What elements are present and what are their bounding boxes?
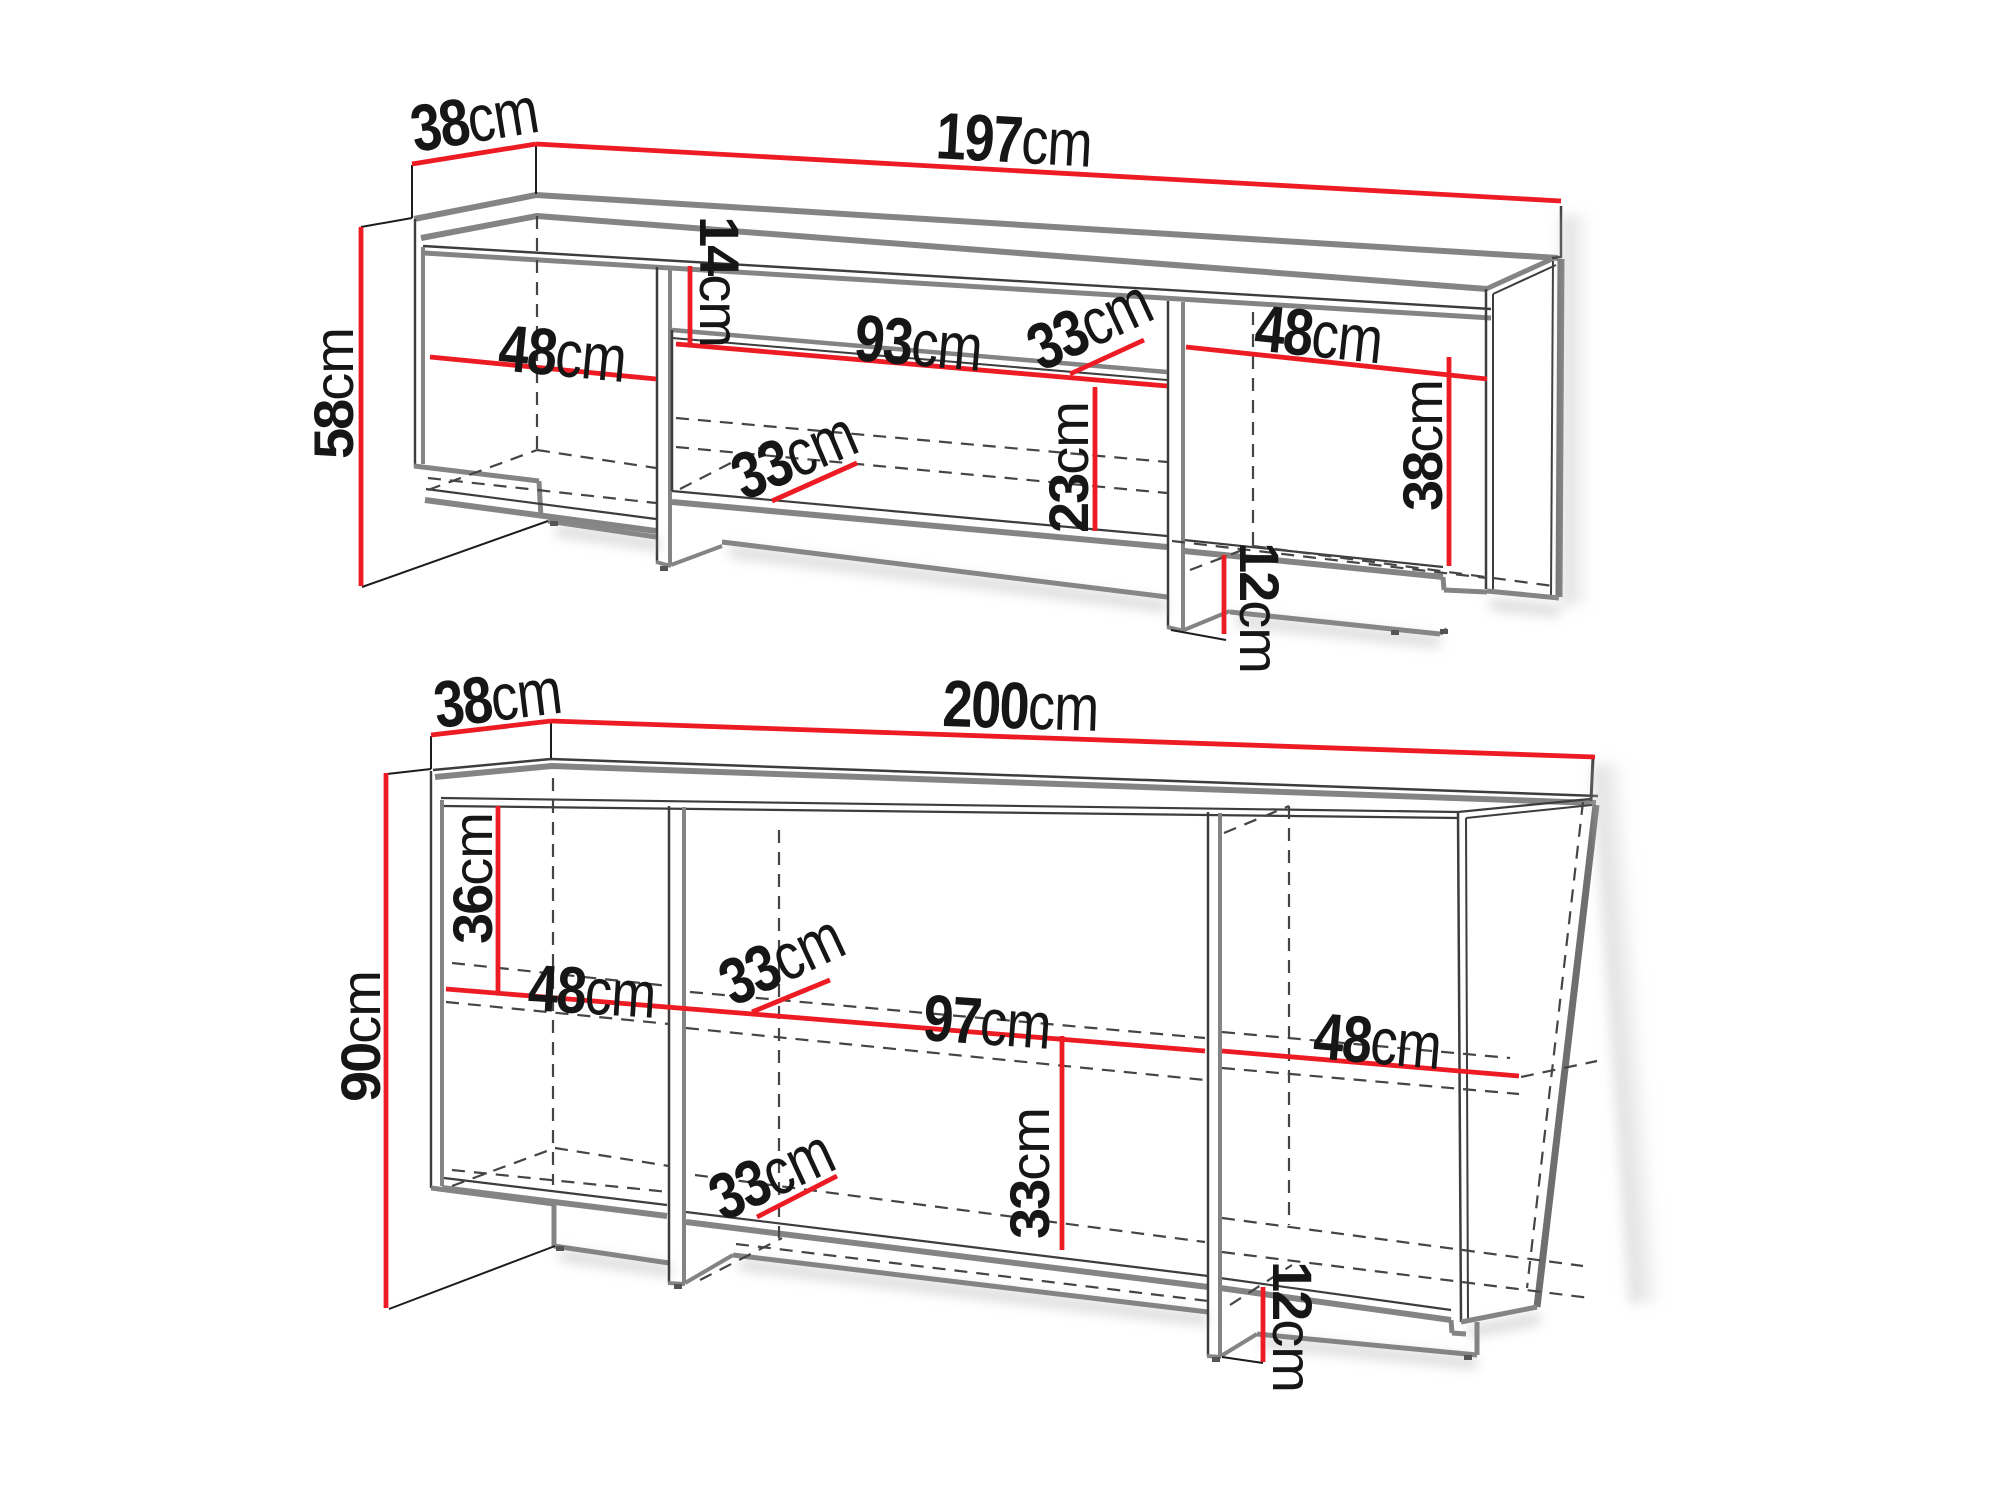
svg-text:200cm: 200cm <box>942 666 1100 745</box>
svg-text:12cm: 12cm <box>1261 1261 1324 1392</box>
svg-text:48cm: 48cm <box>496 310 630 396</box>
svg-text:58cm: 58cm <box>302 328 365 459</box>
svg-text:23cm: 23cm <box>1037 402 1100 533</box>
svg-text:12cm: 12cm <box>1228 542 1291 673</box>
svg-text:38cm: 38cm <box>1391 380 1454 511</box>
svg-text:38cm: 38cm <box>430 653 566 742</box>
svg-text:14cm: 14cm <box>688 216 751 347</box>
svg-text:33cm: 33cm <box>998 1108 1061 1239</box>
svg-text:36cm: 36cm <box>441 813 504 944</box>
svg-text:48cm: 48cm <box>1311 998 1444 1083</box>
svg-text:93cm: 93cm <box>852 300 985 385</box>
svg-text:48cm: 48cm <box>526 950 658 1032</box>
svg-text:48cm: 48cm <box>1252 290 1386 377</box>
svg-text:197cm: 197cm <box>934 98 1094 181</box>
svg-text:90cm: 90cm <box>329 971 392 1102</box>
svg-text:33cm: 33cm <box>720 396 866 514</box>
svg-text:97cm: 97cm <box>921 980 1053 1063</box>
svg-text:38cm: 38cm <box>405 72 543 166</box>
